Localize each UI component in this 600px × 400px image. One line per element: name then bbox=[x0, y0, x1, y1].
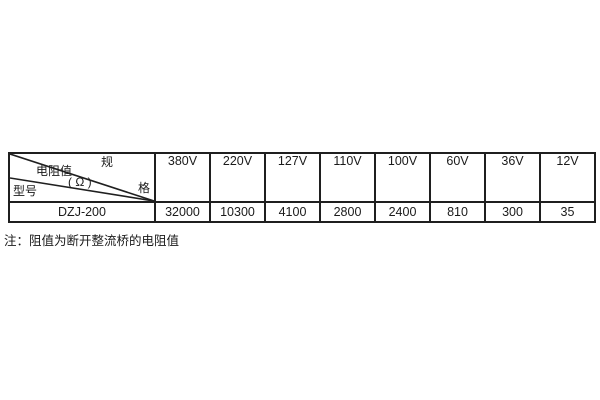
header-row: 规 电阻值 ( Ω ) 格 型号 380V 220V 127V 110V 100… bbox=[9, 153, 595, 202]
resistance-label: 电阻值 bbox=[36, 165, 72, 178]
spec-label-top-char: 规 bbox=[101, 156, 113, 169]
footnote: 注：阻值为断开整流桥的电阻值 bbox=[4, 230, 179, 249]
resistance-value-cell: 2800 bbox=[320, 202, 375, 222]
resistance-value-cell: 300 bbox=[485, 202, 540, 222]
resistance-value-cell: 4100 bbox=[265, 202, 320, 222]
voltage-header-127v: 127V bbox=[265, 153, 320, 202]
spec-table-container: 规 电阻值 ( Ω ) 格 型号 380V 220V 127V 110V 100… bbox=[8, 152, 596, 223]
resistance-spec-table: 规 电阻值 ( Ω ) 格 型号 380V 220V 127V 110V 100… bbox=[8, 152, 596, 223]
voltage-header-100v: 100V bbox=[375, 153, 430, 202]
model-label: 型号 bbox=[13, 185, 37, 198]
model-cell: DZJ-200 bbox=[9, 202, 155, 222]
diagonal-corner-header-cell: 规 电阻值 ( Ω ) 格 型号 bbox=[9, 153, 155, 202]
voltage-header-220v: 220V bbox=[210, 153, 265, 202]
voltage-header-60v: 60V bbox=[430, 153, 485, 202]
resistance-value-cell: 2400 bbox=[375, 202, 430, 222]
table-row: DZJ-200 32000 10300 4100 2800 2400 810 3… bbox=[9, 202, 595, 222]
spec-label-bottom-char: 格 bbox=[138, 182, 150, 195]
voltage-header-12v: 12V bbox=[540, 153, 595, 202]
voltage-header-36v: 36V bbox=[485, 153, 540, 202]
resistance-value-cell: 810 bbox=[430, 202, 485, 222]
voltage-header-110v: 110V bbox=[320, 153, 375, 202]
resistance-unit-label: ( Ω ) bbox=[68, 176, 92, 189]
resistance-value-cell: 32000 bbox=[155, 202, 210, 222]
resistance-value-cell: 35 bbox=[540, 202, 595, 222]
voltage-header-380v: 380V bbox=[155, 153, 210, 202]
resistance-value-cell: 10300 bbox=[210, 202, 265, 222]
